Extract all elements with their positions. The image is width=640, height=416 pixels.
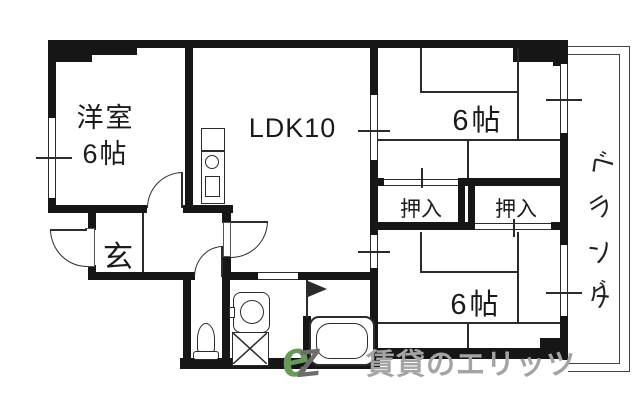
label-western-room-size: 6帖	[58, 132, 153, 171]
window-bedroom-lower	[560, 245, 568, 318]
washing-machine-pan-icon	[232, 332, 269, 366]
closet-divider-gap	[465, 186, 468, 222]
wall-hall-ldk-lower	[222, 256, 231, 280]
label-entrance: 玄	[97, 232, 139, 276]
washbasin-bowl	[240, 300, 264, 324]
label-ldk: LDK10	[235, 113, 350, 144]
tatami-line	[378, 139, 560, 141]
wall-western-ldk	[185, 48, 193, 208]
tatami-line	[420, 232, 422, 272]
toilet-icon	[197, 323, 215, 353]
bathtub-inner	[316, 323, 368, 359]
kitchen-sink-icon	[205, 176, 220, 197]
label-closet-left: 押入	[384, 193, 458, 223]
wall-left-upper	[48, 48, 56, 118]
wall-toilet-left	[183, 272, 191, 368]
closet-left-tick	[421, 168, 423, 188]
washbasin-tap	[229, 307, 235, 318]
tatami-line	[467, 141, 469, 178]
logo-glyph: Z	[295, 342, 323, 387]
folding-door-flag-icon	[308, 281, 327, 297]
wall-right-mid	[560, 133, 568, 245]
tatami-line	[420, 48, 422, 92]
label-bedroom-upper-size: 6帖	[420, 97, 536, 139]
burner-circle-icon	[205, 155, 219, 169]
slider-lower-tick	[358, 251, 390, 253]
slider-ldk-bedroom-upper	[370, 95, 378, 160]
washroom-sliding-door	[258, 272, 298, 280]
slider-upper-tick	[358, 130, 390, 132]
wall-closet-top-right	[458, 178, 560, 186]
watermark-text: 賃貸のエリッツ	[366, 341, 576, 383]
toilet-base	[193, 351, 219, 360]
swing-door-arc-toilet	[194, 246, 223, 277]
tatami-line	[420, 91, 518, 93]
wall-ldk-right-upper	[370, 48, 378, 95]
wall-closet-top-stub	[370, 178, 384, 186]
floor-plan: ベ ラ ン ダ 洋室 6帖 LDK10 6帖 6帖 押入 押入 玄 e Z 賃貸…	[0, 0, 640, 416]
wall-ldk-bottom-left	[231, 272, 258, 280]
wall-closet-bottom-left	[370, 222, 475, 230]
elitz-logo-icon: e Z	[281, 330, 320, 388]
genkan-step-line	[142, 213, 144, 272]
label-western-room-name: 洋室	[58, 96, 153, 135]
swing-door-arc-western-room	[147, 172, 183, 208]
veranda-char: ダ	[572, 266, 631, 326]
wall-westernroom-bottom	[48, 205, 147, 213]
wall-ldk-bottom-right	[298, 272, 378, 280]
wall-toilet-wash	[222, 280, 230, 368]
label-bedroom-lower-size: 6帖	[418, 281, 534, 323]
wall-hall-left-upper	[88, 210, 96, 230]
tatami-line	[420, 271, 518, 273]
kitchen-divider-line	[202, 150, 224, 152]
swing-door-arc-entrance	[50, 229, 87, 267]
veranda-label: ベ ラ ン ダ	[580, 142, 622, 318]
wall-right-top	[560, 40, 568, 64]
wall-pillar-top-left-step	[90, 40, 137, 55]
wall-closet-bottom-stub	[551, 222, 560, 230]
hall-ldk-door-panel	[223, 222, 231, 257]
label-closet-right: 押入	[479, 193, 553, 223]
swing-door-arc-hall-ldk	[231, 221, 268, 258]
